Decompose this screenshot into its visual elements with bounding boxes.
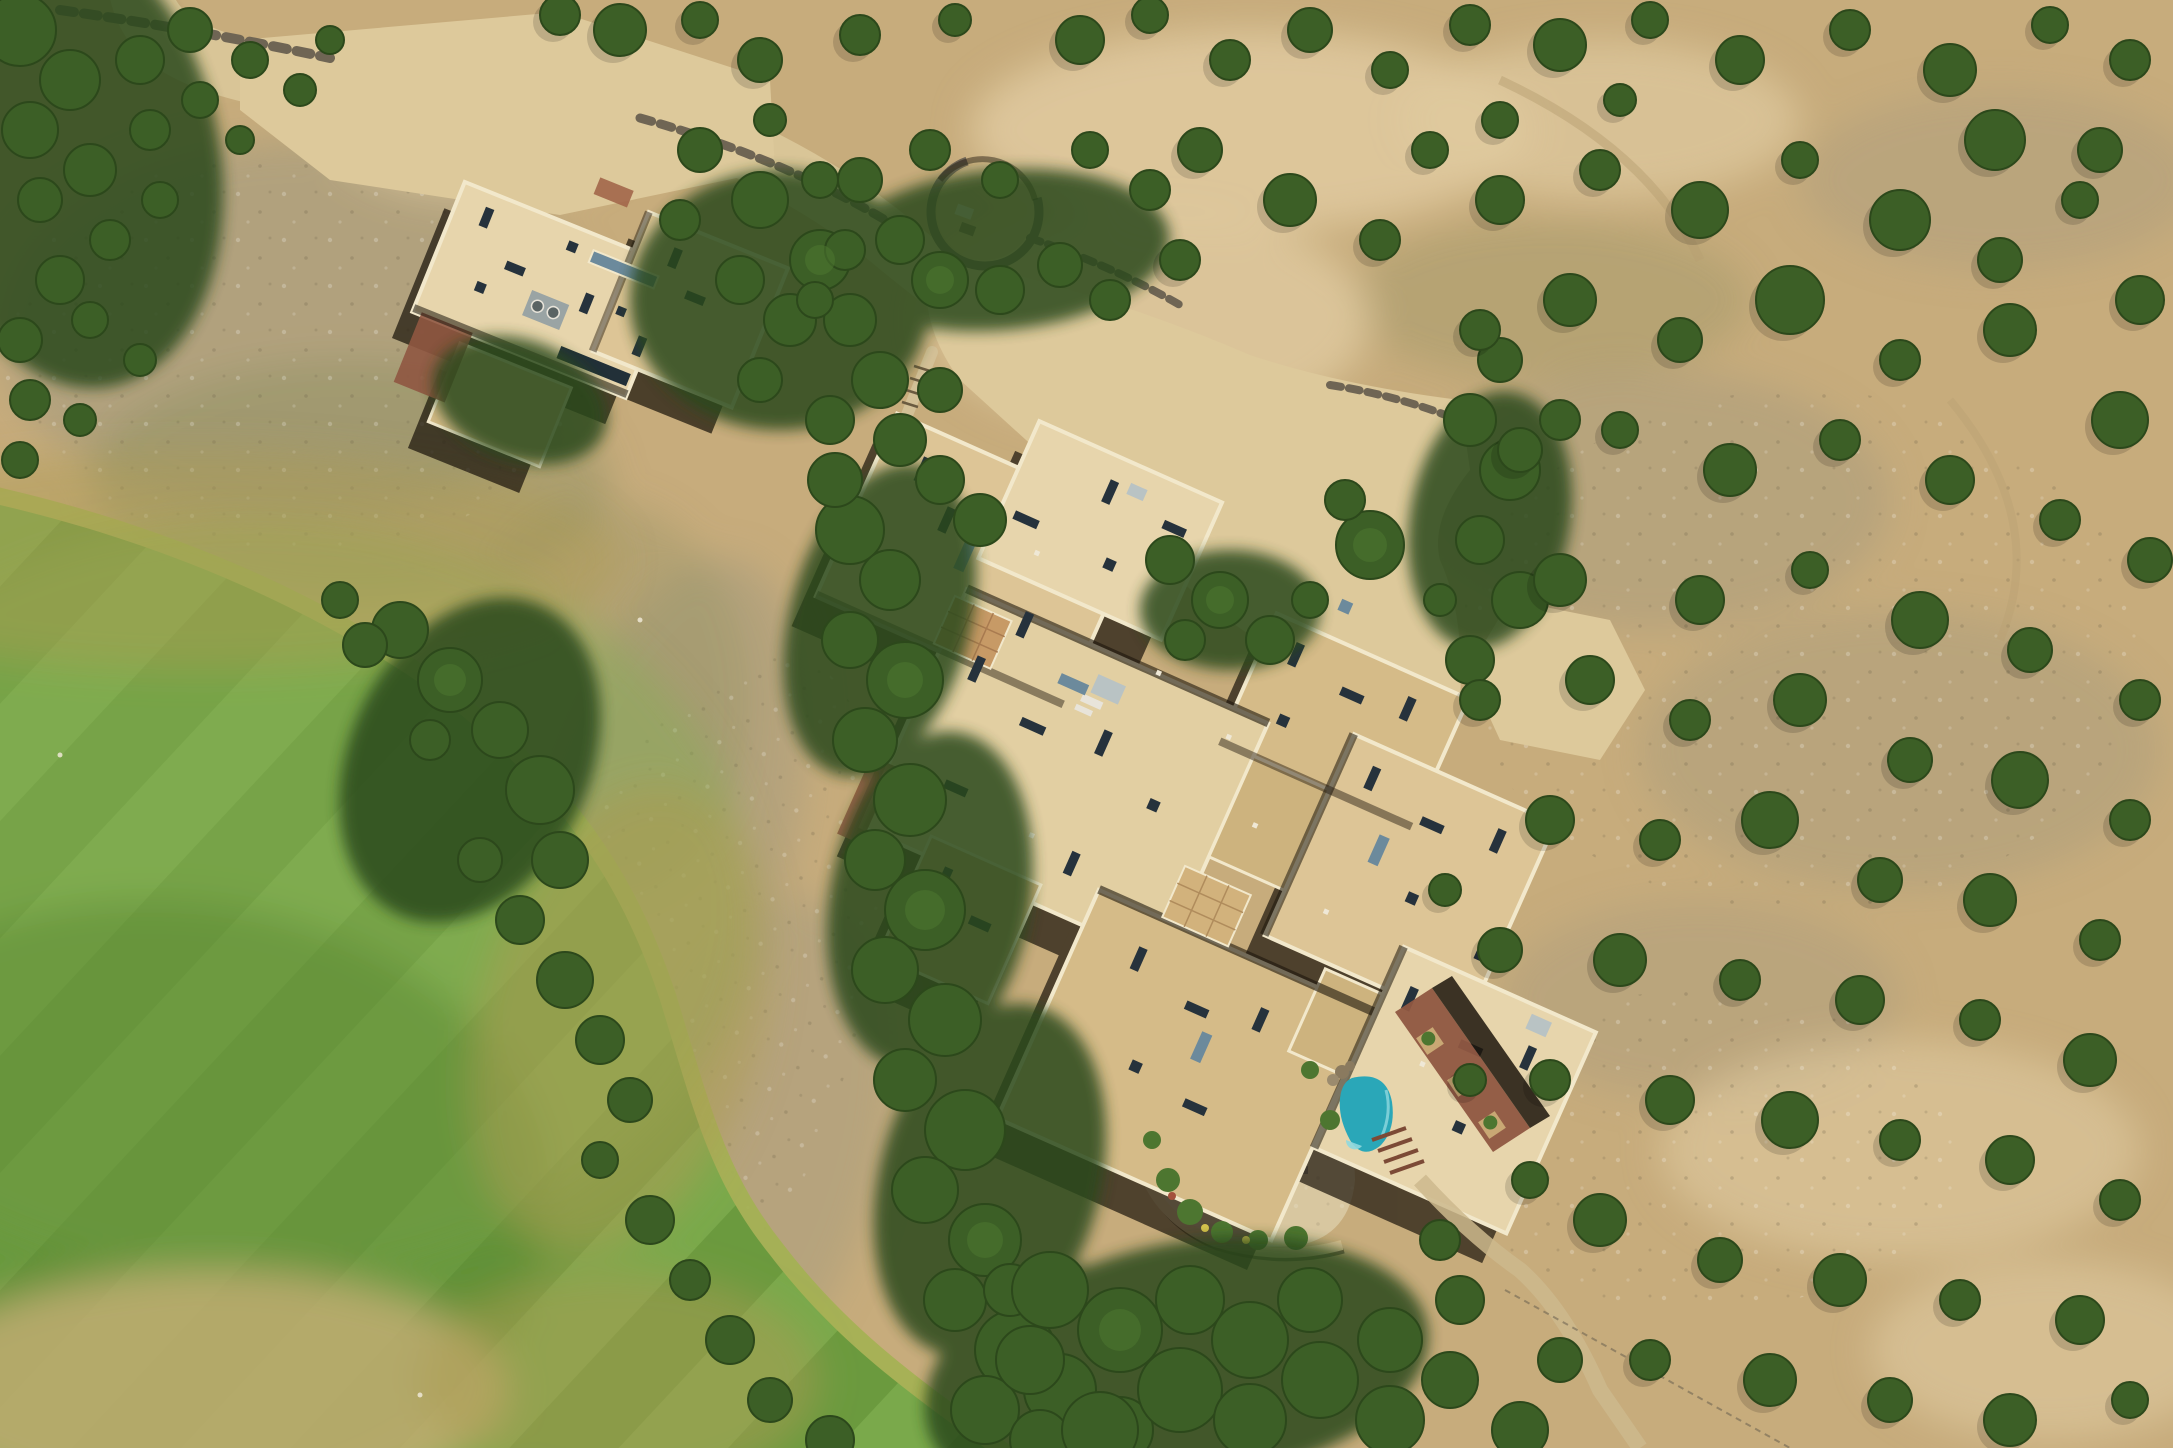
tree-canopy: [458, 838, 502, 882]
tree-canopy: [2064, 1034, 2116, 1086]
tree-canopy: [1138, 1348, 1222, 1432]
tree-canopy: [1246, 616, 1294, 664]
tree-canopy: [1880, 340, 1920, 380]
golf-ball: [58, 753, 63, 758]
tree-canopy: [2, 102, 58, 158]
tree-canopy: [64, 144, 116, 196]
tree-canopy: [1325, 480, 1365, 520]
tree-canopy: [1038, 243, 1082, 287]
tree-canopy: [64, 404, 96, 436]
tree-canopy: [670, 1260, 710, 1300]
shrub: [1320, 1110, 1340, 1130]
tree-canopy: [1574, 1194, 1626, 1246]
tree-canopy: [124, 344, 156, 376]
tree-canopy: [1672, 182, 1728, 238]
tree-canopy: [1478, 928, 1522, 972]
tree-canopy: [1742, 792, 1798, 848]
tree-canopy: [1704, 444, 1756, 496]
tree-canopy: [1498, 428, 1542, 472]
tree-canopy: [1762, 1092, 1818, 1148]
tree-canopy: [1292, 582, 1328, 618]
flower-patch: [1168, 1192, 1176, 1200]
tree-canopy: [2110, 40, 2150, 80]
canopy-highlight: [926, 266, 954, 294]
tree-canopy: [1880, 1120, 1920, 1160]
tree-canopy: [1132, 0, 1168, 33]
tree-canopy: [732, 172, 788, 228]
tree-canopy: [2, 442, 38, 478]
tree-canopy: [226, 126, 254, 154]
tree-canopy: [874, 414, 926, 466]
tree-canopy: [1720, 960, 1760, 1000]
tree-canopy: [1658, 318, 1702, 362]
tree-canopy: [1090, 280, 1130, 320]
tree-canopy: [918, 368, 962, 412]
tree-canopy: [594, 4, 646, 56]
tree-canopy: [168, 8, 212, 52]
canopy-highlight: [967, 1222, 1003, 1258]
tree-canopy: [1072, 132, 1108, 168]
tree-canopy: [748, 1378, 792, 1422]
tree-canopy: [660, 200, 700, 240]
tree-canopy: [1630, 1340, 1670, 1380]
tree-canopy: [738, 358, 782, 402]
tree-canopy: [232, 42, 268, 78]
shrub: [1156, 1168, 1180, 1192]
tree-canopy: [1282, 1342, 1358, 1418]
tree-canopy: [1924, 44, 1976, 96]
tree-canopy: [925, 1090, 1005, 1170]
tree-canopy: [716, 256, 764, 304]
tree-canopy: [2116, 276, 2164, 324]
tree-canopy: [1360, 220, 1400, 260]
tree-canopy: [909, 984, 981, 1056]
tree-canopy: [806, 396, 854, 444]
tree-canopy: [1698, 1238, 1742, 1282]
aerial-photo-canvas: [0, 0, 2173, 1448]
tree-canopy: [1544, 274, 1596, 326]
tree-canopy: [802, 162, 838, 198]
tree-canopy: [1744, 1354, 1796, 1406]
tree-canopy: [808, 453, 862, 507]
tree-canopy: [1422, 1352, 1478, 1408]
tree-canopy: [2110, 800, 2150, 840]
tree-canopy: [1992, 752, 2048, 808]
tree-canopy: [90, 220, 130, 260]
tree-canopy: [1978, 238, 2022, 282]
tree-canopy: [1534, 19, 1586, 71]
waterfall-rock: [1345, 1061, 1355, 1071]
tree-canopy: [1358, 1308, 1422, 1372]
tree-canopy: [1670, 700, 1710, 740]
tree-canopy: [1460, 310, 1500, 350]
tree-canopy: [1178, 128, 1222, 172]
tree-canopy: [939, 4, 971, 36]
tree-canopy: [2112, 1382, 2148, 1418]
tree-canopy: [626, 1196, 674, 1244]
tree-canopy: [1774, 674, 1826, 726]
tree-canopy: [1420, 1220, 1460, 1260]
tree-canopy: [2128, 538, 2172, 582]
tree-canopy: [1814, 1254, 1866, 1306]
tree-canopy: [1538, 1338, 1582, 1382]
tree-canopy: [1214, 1384, 1286, 1448]
tree-canopy: [1858, 858, 1902, 902]
tree-canopy: [2008, 628, 2052, 672]
tree-canopy: [1888, 738, 1932, 782]
tree-canopy: [1460, 680, 1500, 720]
tree-canopy: [840, 15, 880, 55]
tree-canopy: [1356, 1386, 1424, 1448]
tree-canopy: [2100, 1180, 2140, 1220]
tree-canopy: [1160, 240, 1200, 280]
canopy-highlight: [805, 245, 835, 275]
tree-canopy: [1412, 132, 1448, 168]
tree-canopy: [982, 162, 1018, 198]
tree-canopy: [1604, 84, 1636, 116]
tree-canopy: [322, 582, 358, 618]
tree-canopy: [537, 952, 593, 1008]
tree-canopy: [1965, 110, 2025, 170]
tree-canopy: [1429, 874, 1461, 906]
tree-canopy: [892, 1157, 958, 1223]
tree-canopy: [852, 937, 918, 1003]
tree-canopy: [472, 702, 528, 758]
waterfall-rock: [1327, 1074, 1339, 1086]
tree-canopy: [18, 178, 62, 222]
tree-canopy: [1580, 150, 1620, 190]
tree-canopy: [142, 182, 178, 218]
tree-canopy: [976, 266, 1024, 314]
canopy-highlight: [1206, 586, 1234, 614]
tree-canopy: [2092, 392, 2148, 448]
tree-canopy: [284, 74, 316, 106]
canopy-highlight: [1099, 1309, 1141, 1351]
tree-canopy: [706, 1316, 754, 1364]
canopy-highlight: [887, 662, 923, 698]
tree-canopy: [1444, 394, 1496, 446]
tree-canopy: [40, 50, 100, 110]
tree-canopy: [1526, 796, 1574, 844]
tree-canopy: [72, 302, 108, 338]
tree-canopy: [1424, 584, 1456, 616]
tree-canopy: [874, 1049, 936, 1111]
tree-canopy: [130, 110, 170, 150]
tree-canopy: [343, 623, 387, 667]
tree-canopy: [1984, 304, 2036, 356]
tree-canopy: [1454, 1064, 1486, 1096]
tree-canopy: [996, 1326, 1064, 1394]
canopy-highlight: [434, 664, 466, 696]
tree-canopy: [682, 2, 718, 38]
tree-canopy: [2032, 7, 2068, 43]
tree-canopy: [2062, 182, 2098, 218]
tree-canopy: [822, 612, 878, 668]
tree-canopy: [1530, 1060, 1570, 1100]
tree-canopy: [0, 318, 42, 362]
tree-canopy: [797, 282, 833, 318]
tree-canopy: [1566, 656, 1614, 704]
canopy-highlight: [905, 890, 945, 930]
tree-canopy: [1594, 934, 1646, 986]
tree-canopy: [1450, 5, 1490, 45]
tree-canopy: [1210, 40, 1250, 80]
tree-canopy: [1792, 552, 1828, 588]
tree-canopy: [1830, 10, 1870, 50]
tree-canopy: [876, 216, 924, 264]
tree-canopy: [2040, 500, 2080, 540]
tree-canopy: [1940, 1280, 1980, 1320]
tree-canopy: [1482, 102, 1518, 138]
tree-canopy: [608, 1078, 652, 1122]
tree-canopy: [1640, 820, 1680, 860]
tree-canopy: [1926, 456, 1974, 504]
tree-canopy: [738, 38, 782, 82]
golf-ball: [418, 1393, 423, 1398]
tree-canopy: [182, 82, 218, 118]
tree-canopy: [36, 256, 84, 304]
tree-canopy: [910, 130, 950, 170]
tree-canopy: [1165, 620, 1205, 660]
tree-canopy: [1156, 1266, 1224, 1334]
tree-canopy: [540, 0, 580, 35]
tree-canopy: [1476, 176, 1524, 224]
tree-canopy: [2120, 680, 2160, 720]
tree-canopy: [754, 104, 786, 136]
tree-canopy: [2056, 1296, 2104, 1344]
tree-canopy: [860, 550, 920, 610]
tree-canopy: [1534, 554, 1586, 606]
tree-canopy: [838, 158, 882, 202]
tree-canopy: [532, 832, 588, 888]
tree-canopy: [1870, 190, 1930, 250]
tree-canopy: [1288, 8, 1332, 52]
tree-canopy: [1278, 1268, 1342, 1332]
tree-canopy: [1212, 1302, 1288, 1378]
tree-canopy: [1372, 52, 1408, 88]
shrub: [1177, 1199, 1203, 1225]
tree-canopy: [1964, 874, 2016, 926]
tree-canopy: [2078, 128, 2122, 172]
tree-canopy: [410, 720, 450, 760]
tree-canopy: [833, 708, 897, 772]
tree-canopy: [1984, 1394, 2036, 1446]
canopy-highlight: [1353, 528, 1387, 562]
tree-canopy: [1130, 170, 1170, 210]
shrub: [1143, 1131, 1161, 1149]
tree-canopy: [1456, 516, 1504, 564]
tree-canopy: [1012, 1252, 1088, 1328]
tree-canopy: [1868, 1378, 1912, 1422]
tree-canopy: [1892, 592, 1948, 648]
tree-canopy: [1512, 1162, 1548, 1198]
tree-canopy: [1836, 976, 1884, 1024]
tree-canopy: [678, 128, 722, 172]
tree-canopy: [1756, 266, 1824, 334]
tree-canopy: [1264, 174, 1316, 226]
tree-canopy: [954, 494, 1006, 546]
tree-canopy: [316, 26, 344, 54]
aerial-photo: [0, 0, 2173, 1448]
tree-canopy: [116, 36, 164, 84]
tree-canopy: [1492, 1402, 1548, 1448]
tree-canopy: [852, 352, 908, 408]
tree-canopy: [1820, 420, 1860, 460]
tree-canopy: [1446, 636, 1494, 684]
tree-canopy: [1436, 1276, 1484, 1324]
tree-canopy: [496, 896, 544, 944]
tree-canopy: [1716, 36, 1764, 84]
tree-canopy: [1676, 576, 1724, 624]
tree-canopy: [1056, 16, 1104, 64]
tree-canopy: [874, 764, 946, 836]
tree-canopy: [1146, 536, 1194, 584]
tree-canopy: [1782, 142, 1818, 178]
tree-canopy: [845, 830, 905, 890]
tree-canopy: [916, 456, 964, 504]
tree-canopy: [1602, 412, 1638, 448]
tree-canopy: [582, 1142, 618, 1178]
tree-canopy: [1960, 1000, 2000, 1040]
tree-canopy: [576, 1016, 624, 1064]
tree-canopy: [1646, 1076, 1694, 1124]
tree-canopy: [924, 1269, 986, 1331]
tree-canopy: [506, 756, 574, 824]
shrub: [1301, 1061, 1319, 1079]
tree-canopy: [2080, 920, 2120, 960]
tree-canopy: [10, 380, 50, 420]
tree-canopy: [1632, 2, 1668, 38]
tree-canopy: [1986, 1136, 2034, 1184]
golf-ball: [638, 618, 643, 623]
flower-patch: [1201, 1224, 1209, 1232]
tree-canopy: [1540, 400, 1580, 440]
